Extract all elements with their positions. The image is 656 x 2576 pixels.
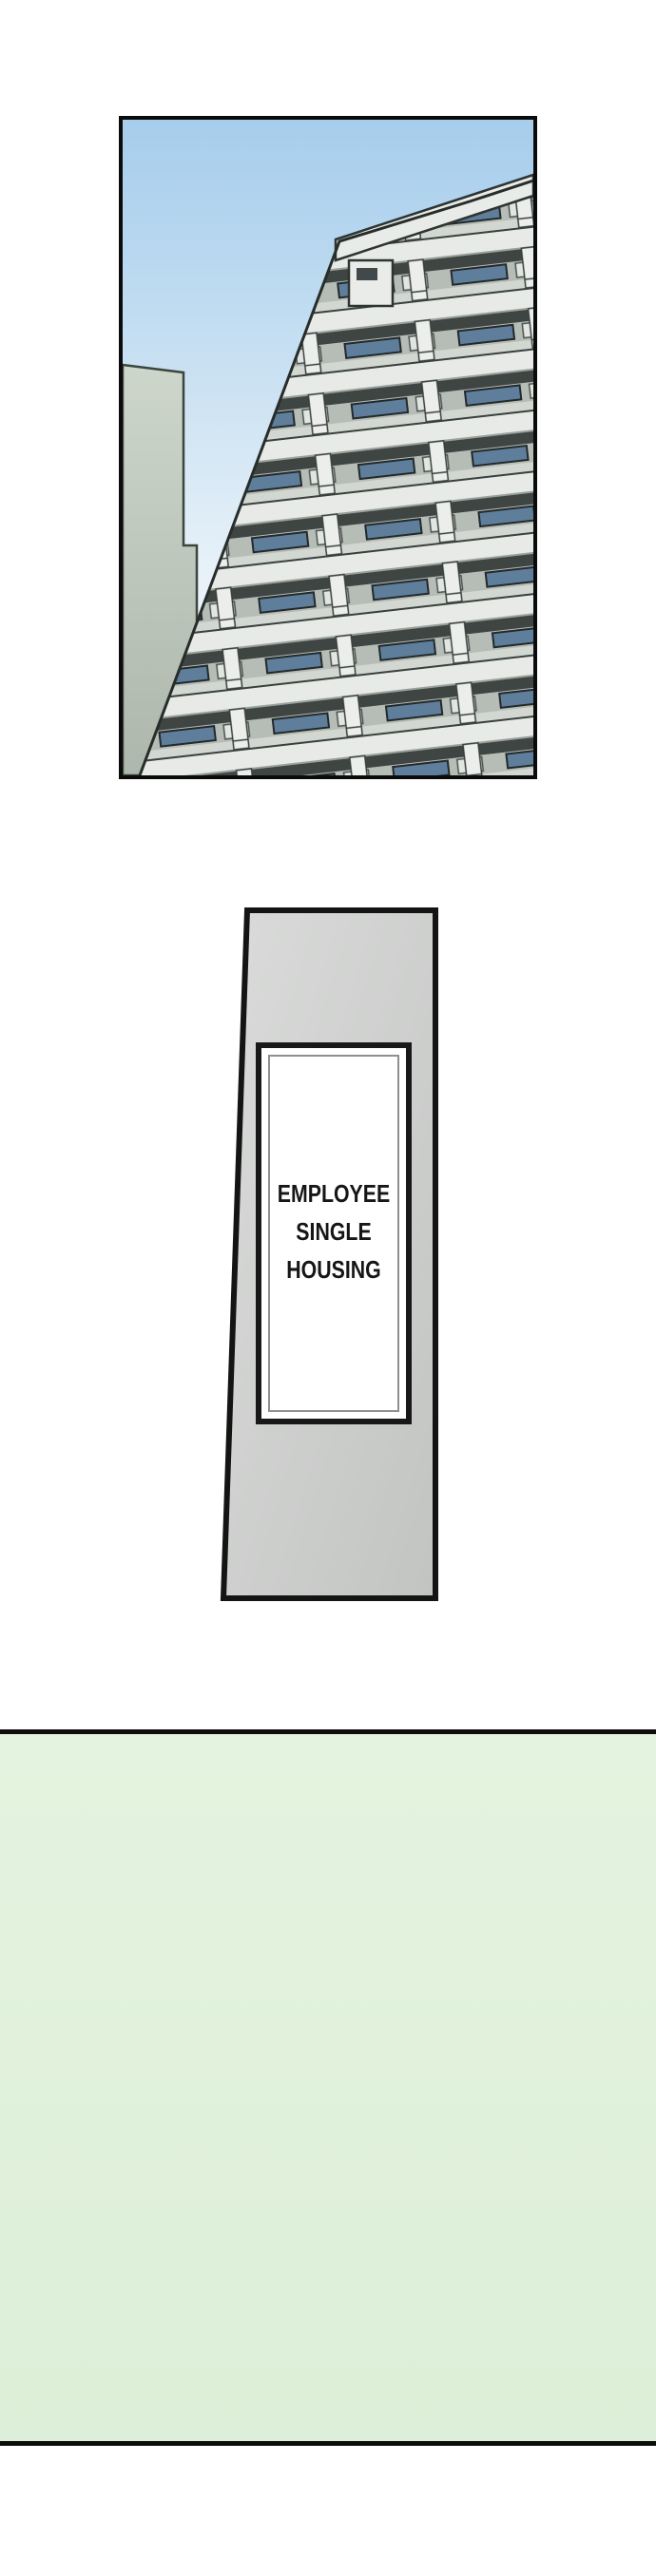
panel-building bbox=[119, 116, 537, 779]
manga-page: EMPLOYEE SINGLE HOUSING bbox=[0, 0, 656, 2576]
scene-background: OUR COMPANY HAS EMPLOYEE HOUSING? OH, YO… bbox=[0, 1734, 656, 2446]
panel-sign: EMPLOYEE SINGLE HOUSING bbox=[214, 903, 447, 1611]
roof-tower bbox=[349, 260, 393, 306]
tower-window bbox=[357, 268, 377, 280]
building-illustration bbox=[123, 120, 533, 775]
sign-text: EMPLOYEE SINGLE HOUSING bbox=[272, 1045, 396, 1422]
